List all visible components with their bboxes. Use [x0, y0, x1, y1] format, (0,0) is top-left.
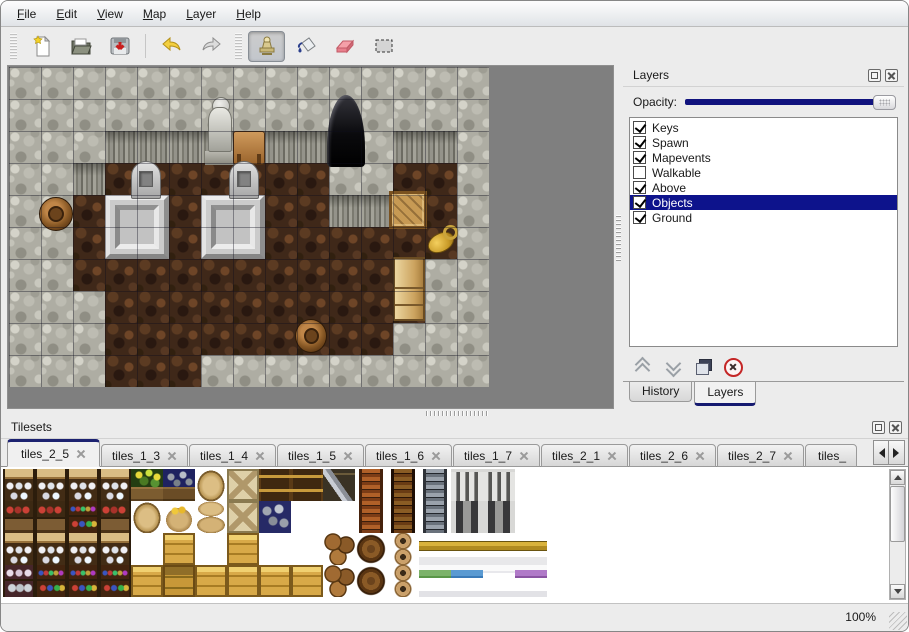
- map-tile[interactable]: [265, 99, 297, 131]
- close-tab-icon[interactable]: [783, 451, 793, 461]
- map-tile[interactable]: [265, 227, 297, 259]
- map-tile[interactable]: [265, 291, 297, 323]
- map-tile[interactable]: [297, 131, 329, 163]
- map-tile[interactable]: [137, 67, 169, 99]
- scrollbar-thumb[interactable]: [890, 486, 905, 542]
- tilesets-dock: Tilesets tiles_2_5tiles_1_3tiles_1_4tile…: [1, 417, 908, 603]
- layer-visibility-checkbox[interactable]: [633, 121, 646, 134]
- map-tile[interactable]: [73, 163, 105, 195]
- menu-layer[interactable]: Layer: [176, 3, 226, 25]
- scroll-down-button[interactable]: [890, 584, 905, 599]
- map-tile[interactable]: [73, 259, 105, 291]
- tileset-tab-tiles_2_1[interactable]: tiles_2_1: [541, 444, 628, 467]
- map-tile[interactable]: [41, 227, 73, 259]
- map-tile[interactable]: [137, 259, 169, 291]
- map-tile[interactable]: [457, 227, 489, 259]
- map-tile[interactable]: [105, 99, 137, 131]
- map-tile[interactable]: [105, 67, 137, 99]
- tileset-tile[interactable]: [35, 469, 67, 501]
- table[interactable]: [233, 131, 265, 165]
- close-tab-icon[interactable]: [76, 449, 86, 459]
- layer-list: KeysSpawnMapeventsWalkableAboveObjectsGr…: [629, 117, 898, 347]
- tileset-tile[interactable]: [291, 469, 323, 501]
- tileset-tile[interactable]: [515, 469, 547, 501]
- tileset-tile[interactable]: [227, 565, 259, 597]
- tileset-tile[interactable]: [419, 501, 451, 533]
- map-tile[interactable]: [361, 355, 393, 387]
- tileset-tab-tiles_2_7[interactable]: tiles_2_7: [717, 444, 804, 467]
- map-tile[interactable]: [9, 291, 41, 323]
- stamp-tool-button[interactable]: [248, 31, 285, 62]
- map-tile[interactable]: [233, 355, 265, 387]
- layer-visibility-checkbox[interactable]: [633, 196, 646, 209]
- map-tile[interactable]: [457, 99, 489, 131]
- map-tile[interactable]: [361, 227, 393, 259]
- float-dock-icon[interactable]: [872, 421, 885, 434]
- map-tile[interactable]: [41, 323, 73, 355]
- map-tile[interactable]: [137, 99, 169, 131]
- tool-crate[interactable]: [389, 191, 427, 229]
- tileset-tab-tiles_2_5[interactable]: tiles_2_5: [7, 439, 100, 467]
- map-tile[interactable]: [169, 227, 201, 259]
- layer-row-above[interactable]: Above: [630, 180, 897, 195]
- panel-tab-history[interactable]: History: [629, 382, 692, 402]
- status-bar: 100%: [1, 603, 908, 631]
- panel-tab-bar: HistoryLayers: [623, 381, 904, 409]
- map-tile[interactable]: [425, 323, 457, 355]
- tileset-tile[interactable]: [131, 565, 163, 597]
- tileset-tile[interactable]: [3, 565, 35, 597]
- opacity-slider[interactable]: [685, 95, 896, 110]
- tilesets-dock-title: Tilesets: [11, 420, 52, 434]
- layer-row-ground[interactable]: Ground: [630, 210, 897, 225]
- tileset-tile[interactable]: [163, 469, 195, 501]
- map-tile[interactable]: [425, 99, 457, 131]
- map-tile[interactable]: [201, 67, 233, 99]
- tileset-tile[interactable]: [483, 501, 515, 533]
- tileset-tile[interactable]: [163, 501, 195, 533]
- close-dock-icon[interactable]: [885, 69, 898, 82]
- map-tile[interactable]: [265, 323, 297, 355]
- tileset-tile[interactable]: [355, 533, 387, 565]
- tileset-tile[interactable]: [67, 469, 99, 501]
- pedestal-right[interactable]: [201, 195, 265, 259]
- map-tile[interactable]: [265, 259, 297, 291]
- layers-dock-title: Layers: [633, 68, 669, 82]
- map-tile[interactable]: [457, 195, 489, 227]
- close-tab-icon[interactable]: [255, 451, 265, 461]
- rect-select-icon: [372, 34, 396, 58]
- map-tile[interactable]: [457, 291, 489, 323]
- tileset-tile[interactable]: [323, 469, 355, 501]
- tileset-tile[interactable]: [3, 469, 35, 501]
- redo-button[interactable]: [192, 31, 229, 62]
- tileset-tile[interactable]: [259, 469, 291, 501]
- vertical-splitter[interactable]: [614, 65, 623, 409]
- tileset-tile[interactable]: [387, 533, 419, 565]
- new-map-button[interactable]: [23, 31, 60, 62]
- tileset-tile[interactable]: [195, 533, 227, 565]
- map-tile[interactable]: [105, 291, 137, 323]
- map-view: [7, 65, 614, 409]
- fill-tool-button[interactable]: [287, 31, 324, 62]
- map-tile[interactable]: [169, 291, 201, 323]
- map-tile[interactable]: [73, 99, 105, 131]
- map-tile[interactable]: [73, 291, 105, 323]
- tileset-tile[interactable]: [131, 501, 163, 533]
- map-tile[interactable]: [297, 259, 329, 291]
- map-tile[interactable]: [105, 131, 137, 163]
- map-tile[interactable]: [297, 163, 329, 195]
- tileset-tile[interactable]: [35, 501, 67, 533]
- tileset-tile[interactable]: [515, 501, 547, 533]
- map-tile[interactable]: [137, 131, 169, 163]
- tileset-tile[interactable]: [195, 501, 227, 533]
- map-tile[interactable]: [73, 323, 105, 355]
- tileset-tab-tiles_1_3[interactable]: tiles_1_3: [101, 444, 188, 467]
- map-tile[interactable]: [457, 67, 489, 99]
- toolbar-handle[interactable]: [10, 33, 17, 59]
- map-tile[interactable]: [329, 163, 361, 195]
- tileset-tile[interactable]: [99, 533, 131, 565]
- save-map-button[interactable]: [101, 31, 138, 62]
- map-tile[interactable]: [9, 259, 41, 291]
- layer-row-spawn[interactable]: Spawn: [630, 135, 897, 150]
- map-tile[interactable]: [73, 227, 105, 259]
- map-canvas[interactable]: [9, 67, 489, 387]
- map-tile[interactable]: [9, 131, 41, 163]
- tileset-scrollbar[interactable]: [889, 469, 906, 600]
- menu-edit[interactable]: Edit: [46, 3, 87, 25]
- tileset-tile[interactable]: [259, 533, 291, 565]
- menu-map[interactable]: Map: [133, 3, 176, 25]
- tileset-tile[interactable]: [99, 469, 131, 501]
- map-tile[interactable]: [169, 99, 201, 131]
- map-tile[interactable]: [105, 259, 137, 291]
- tilesets-dock-titlebar: Tilesets: [1, 417, 908, 439]
- map-tile[interactable]: [361, 99, 393, 131]
- close-tab-icon[interactable]: [343, 451, 353, 461]
- tileset-tile[interactable]: [291, 501, 323, 533]
- tileset-tile[interactable]: [483, 565, 515, 597]
- map-tile[interactable]: [265, 355, 297, 387]
- tileset-tile[interactable]: [355, 501, 387, 533]
- map-tile[interactable]: [201, 355, 233, 387]
- map-tile[interactable]: [265, 131, 297, 163]
- float-dock-icon[interactable]: [868, 69, 881, 82]
- map-tile[interactable]: [393, 131, 425, 163]
- layer-label: Ground: [652, 211, 692, 225]
- map-tile[interactable]: [265, 163, 297, 195]
- map-tile[interactable]: [73, 355, 105, 387]
- tileset-tab-label: tiles_1_5: [288, 449, 336, 463]
- map-tile[interactable]: [169, 355, 201, 387]
- layer-visibility-checkbox[interactable]: [633, 181, 646, 194]
- map-tile[interactable]: [457, 323, 489, 355]
- tileset-tile[interactable]: [99, 565, 131, 597]
- map-tile[interactable]: [297, 67, 329, 99]
- map-tile[interactable]: [41, 67, 73, 99]
- panel-tab-layers[interactable]: Layers: [694, 382, 756, 406]
- map-tile[interactable]: [73, 67, 105, 99]
- map-tile[interactable]: [457, 163, 489, 195]
- map-tile[interactable]: [361, 323, 393, 355]
- map-tile[interactable]: [457, 131, 489, 163]
- statue[interactable]: [205, 97, 235, 165]
- resize-grip[interactable]: [889, 612, 907, 630]
- golden-jug[interactable]: [425, 223, 461, 259]
- layer-visibility-checkbox[interactable]: [633, 166, 646, 179]
- map-tile[interactable]: [393, 99, 425, 131]
- layer-label: Walkable: [652, 166, 701, 180]
- close-tab-icon[interactable]: [695, 451, 705, 461]
- barrel-left[interactable]: [39, 197, 73, 231]
- map-tile[interactable]: [233, 323, 265, 355]
- tileset-tile[interactable]: [451, 533, 483, 565]
- map-tile[interactable]: [9, 355, 41, 387]
- layer-visibility-checkbox[interactable]: [633, 151, 646, 164]
- lower-layer-button[interactable]: [662, 356, 684, 378]
- menu-view[interactable]: View: [87, 3, 133, 25]
- map-tile[interactable]: [9, 227, 41, 259]
- tileset-tile[interactable]: [419, 469, 451, 501]
- down-arrow-icon: [894, 589, 902, 598]
- map-tile[interactable]: [425, 355, 457, 387]
- map-tile[interactable]: [425, 131, 457, 163]
- close-dock-icon[interactable]: [889, 421, 902, 434]
- map-tile[interactable]: [393, 323, 425, 355]
- map-tile[interactable]: [201, 291, 233, 323]
- map-tile[interactable]: [361, 259, 393, 291]
- tileset-tab-label: tiles_1_3: [112, 449, 160, 463]
- layers-dock-titlebar: Layers: [623, 65, 904, 87]
- map-tile[interactable]: [169, 195, 201, 227]
- tileset-tile[interactable]: [131, 469, 163, 501]
- gravestone-right[interactable]: [229, 161, 259, 199]
- layers-dock: Layers Opacity: KeysSpawnMapeventsWalkab…: [623, 65, 904, 409]
- tileset-tile[interactable]: [99, 501, 131, 533]
- tileset-tile[interactable]: [67, 501, 99, 533]
- tileset-tile[interactable]: [323, 565, 355, 597]
- opacity-slider-handle[interactable]: [873, 95, 896, 110]
- tileset-tile[interactable]: [291, 565, 323, 597]
- tileset-tile[interactable]: [355, 469, 387, 501]
- open-folder-icon: [69, 34, 93, 58]
- scroll-tabs-left-button[interactable]: [873, 440, 889, 465]
- close-tab-icon[interactable]: [607, 451, 617, 461]
- map-tile[interactable]: [329, 195, 361, 227]
- map-tile[interactable]: [233, 259, 265, 291]
- map-tile[interactable]: [329, 291, 361, 323]
- map-tile[interactable]: [297, 99, 329, 131]
- tileset-tile[interactable]: [291, 533, 323, 565]
- map-tile[interactable]: [297, 195, 329, 227]
- layer-row-keys[interactable]: Keys: [630, 120, 897, 135]
- tileset-tile[interactable]: [451, 565, 483, 597]
- map-tile[interactable]: [265, 195, 297, 227]
- tileset-tile[interactable]: [195, 469, 227, 501]
- tileset-tab-label: tiles_2_6: [640, 449, 688, 463]
- undo-button[interactable]: [153, 31, 190, 62]
- close-tab-icon[interactable]: [167, 451, 177, 461]
- map-tile[interactable]: [361, 131, 393, 163]
- eraser-tool-button[interactable]: [326, 31, 363, 62]
- tileset-tile[interactable]: [195, 565, 227, 597]
- raise-layer-button[interactable]: [631, 356, 653, 378]
- tileset-tile[interactable]: [355, 565, 387, 597]
- map-tile[interactable]: [393, 355, 425, 387]
- map-tile[interactable]: [233, 291, 265, 323]
- tileset-tile[interactable]: [451, 469, 483, 501]
- map-tile[interactable]: [233, 67, 265, 99]
- map-tile[interactable]: [41, 131, 73, 163]
- map-tile[interactable]: [425, 163, 457, 195]
- tileset-tile[interactable]: [227, 501, 259, 533]
- menu-help[interactable]: Help: [226, 3, 271, 25]
- map-tile[interactable]: [105, 355, 137, 387]
- map-tile[interactable]: [73, 131, 105, 163]
- layer-row-walkable[interactable]: Walkable: [630, 165, 897, 180]
- barrel-bottom[interactable]: [295, 319, 327, 353]
- map-tile[interactable]: [169, 131, 201, 163]
- layer-label: Above: [652, 181, 686, 195]
- tileset-tab-tiles[interactable]: tiles_: [805, 444, 857, 467]
- tileset-tab-tiles_1_7[interactable]: tiles_1_7: [453, 444, 540, 467]
- layer-row-objects[interactable]: Objects: [630, 195, 897, 210]
- layer-visibility-checkbox[interactable]: [633, 136, 646, 149]
- cabinet[interactable]: [393, 257, 425, 321]
- map-tile[interactable]: [329, 227, 361, 259]
- gravestone-left[interactable]: [131, 161, 161, 199]
- map-tile[interactable]: [425, 259, 457, 291]
- map-tile[interactable]: [169, 67, 201, 99]
- toolbar-handle[interactable]: [235, 33, 242, 59]
- close-tab-icon[interactable]: [431, 451, 441, 461]
- map-tile[interactable]: [9, 323, 41, 355]
- map-tile[interactable]: [297, 227, 329, 259]
- layer-visibility-checkbox[interactable]: [633, 211, 646, 224]
- tileset-tab-tiles_2_6[interactable]: tiles_2_6: [629, 444, 716, 467]
- map-tile[interactable]: [9, 195, 41, 227]
- map-tile[interactable]: [41, 355, 73, 387]
- map-tile[interactable]: [265, 67, 297, 99]
- tileset-tile[interactable]: [515, 533, 547, 565]
- tileset-tile[interactable]: [163, 565, 195, 597]
- layer-row-mapevents[interactable]: Mapevents: [630, 150, 897, 165]
- tileset-tile[interactable]: [387, 565, 419, 597]
- menu-file[interactable]: File: [7, 3, 46, 25]
- map-tile[interactable]: [9, 67, 41, 99]
- map-tile[interactable]: [425, 291, 457, 323]
- tileset-tile[interactable]: [259, 501, 291, 533]
- pedestal-left[interactable]: [105, 195, 169, 259]
- map-tile[interactable]: [297, 355, 329, 387]
- horizontal-splitter[interactable]: [1, 409, 908, 417]
- map-tile[interactable]: [393, 227, 425, 259]
- map-tile[interactable]: [457, 355, 489, 387]
- tileset-tab-label: tiles_2_5: [21, 447, 69, 461]
- map-tile[interactable]: [169, 323, 201, 355]
- map-tile[interactable]: [393, 67, 425, 99]
- map-tile[interactable]: [201, 259, 233, 291]
- map-tile[interactable]: [9, 99, 41, 131]
- tileset-tile[interactable]: [35, 565, 67, 597]
- tileset-tile[interactable]: [227, 533, 259, 565]
- tileset-tile[interactable]: [451, 501, 483, 533]
- tileset-tile[interactable]: [323, 501, 355, 533]
- tileset-tile[interactable]: [419, 533, 451, 565]
- opacity-slider-fill: [685, 99, 880, 105]
- tileset-tile[interactable]: [387, 469, 419, 501]
- map-tile[interactable]: [361, 67, 393, 99]
- tileset-tile[interactable]: [3, 533, 35, 565]
- tileset-tile[interactable]: [483, 469, 515, 501]
- map-tile[interactable]: [9, 163, 41, 195]
- map-tile[interactable]: [137, 323, 169, 355]
- scroll-up-button[interactable]: [890, 470, 905, 485]
- map-tile[interactable]: [41, 99, 73, 131]
- map-tile[interactable]: [201, 323, 233, 355]
- opacity-label: Opacity:: [633, 95, 677, 109]
- open-map-button[interactable]: [62, 31, 99, 62]
- tileset-tab-tiles_1_6[interactable]: tiles_1_6: [365, 444, 452, 467]
- tileset-tile[interactable]: [387, 501, 419, 533]
- tileset-tile[interactable]: [419, 565, 451, 597]
- map-tile[interactable]: [457, 259, 489, 291]
- map-tile[interactable]: [137, 291, 169, 323]
- tileset-tile[interactable]: [515, 565, 547, 597]
- duplicate-layer-button[interactable]: [693, 356, 715, 378]
- map-tile[interactable]: [329, 259, 361, 291]
- tileset-tile[interactable]: [3, 501, 35, 533]
- stamp-tool-icon: [255, 34, 279, 58]
- tileset-tile[interactable]: [131, 533, 163, 565]
- tileset-tile[interactable]: [67, 565, 99, 597]
- tileset-tile[interactable]: [67, 533, 99, 565]
- select-tool-button[interactable]: [365, 31, 402, 62]
- splitter-handle-icon: [616, 215, 621, 261]
- tileset-tile[interactable]: [163, 533, 195, 565]
- map-tile[interactable]: [329, 323, 361, 355]
- toolbar-separator: [145, 34, 146, 58]
- tileset-tile[interactable]: [259, 565, 291, 597]
- map-tile[interactable]: [361, 291, 393, 323]
- map-tile[interactable]: [41, 291, 73, 323]
- map-tile[interactable]: [41, 163, 73, 195]
- tileset-tab-tiles_1_5[interactable]: tiles_1_5: [277, 444, 364, 467]
- tileset-tile[interactable]: [227, 469, 259, 501]
- map-tile[interactable]: [105, 323, 137, 355]
- map-tile[interactable]: [169, 163, 201, 195]
- scroll-tabs-right-button[interactable]: [889, 440, 905, 465]
- map-tile[interactable]: [329, 355, 361, 387]
- map-tile[interactable]: [169, 259, 201, 291]
- tileset-tile[interactable]: [35, 533, 67, 565]
- up-arrow-icon: [894, 471, 902, 480]
- map-tile[interactable]: [41, 259, 73, 291]
- map-tile[interactable]: [425, 67, 457, 99]
- map-tile[interactable]: [233, 99, 265, 131]
- tileset-tile[interactable]: [323, 533, 355, 565]
- delete-layer-button[interactable]: [724, 358, 743, 377]
- map-tile[interactable]: [73, 195, 105, 227]
- tileset-tile[interactable]: [483, 533, 515, 565]
- tileset-tab-tiles_1_4[interactable]: tiles_1_4: [189, 444, 276, 467]
- map-tile[interactable]: [137, 355, 169, 387]
- save-icon: [108, 34, 132, 58]
- tileset-grid[interactable]: [3, 469, 547, 597]
- close-tab-icon[interactable]: [519, 451, 529, 461]
